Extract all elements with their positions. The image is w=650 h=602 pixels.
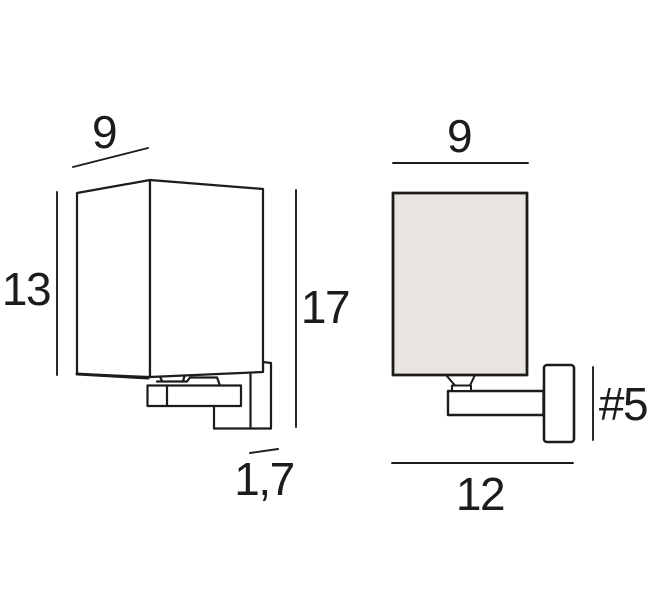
dim-label-side-width: 9 — [92, 106, 116, 158]
dim-label-front-width: 9 — [447, 110, 471, 162]
perspective-view — [77, 180, 271, 429]
mounting-arm-front — [448, 391, 544, 415]
lamp-neck-collar — [452, 386, 471, 392]
dimension-diagram: 9 13 17 1,7 9 12 #5 — [0, 0, 650, 602]
dim-label-total-depth: 12 — [456, 468, 504, 520]
shade-left-face — [77, 180, 150, 377]
lamp-neck-front — [446, 375, 475, 386]
front-view — [393, 193, 574, 442]
wall-plate-front — [544, 365, 574, 442]
shade-right-face — [150, 180, 263, 377]
lamp-drawing-canvas: 9 13 17 1,7 9 12 #5 — [0, 0, 650, 602]
dim-label-bottom-depth: 1,7 — [234, 453, 293, 505]
dim-label-shade-height: 13 — [2, 263, 50, 315]
shade-front — [393, 193, 527, 375]
dim-label-total-height: 17 — [301, 281, 349, 333]
dim-label-plate-size: #5 — [599, 378, 647, 430]
mounting-arm-perspective — [148, 386, 242, 407]
